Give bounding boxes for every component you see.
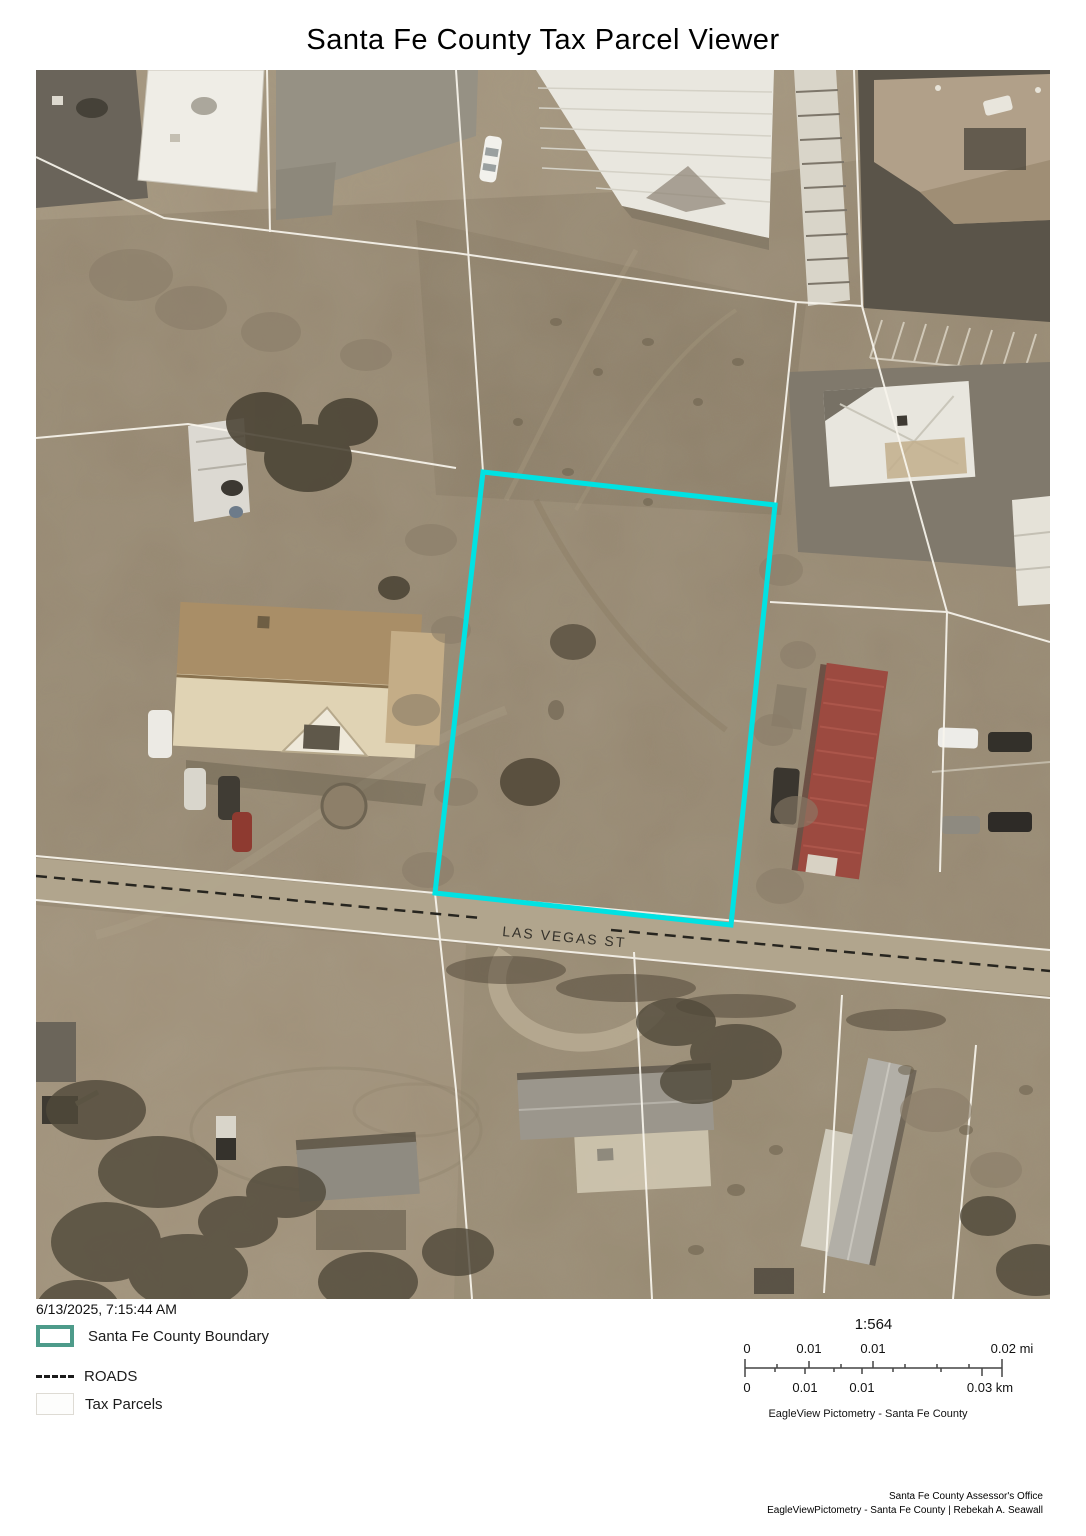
scale-mi-0: 0 bbox=[743, 1341, 750, 1356]
scale-mi-3: 0.02 mi bbox=[991, 1341, 1034, 1356]
scale-km-3: 0.03 km bbox=[967, 1380, 1013, 1395]
legend-item-tax-parcels: Tax Parcels bbox=[36, 1392, 163, 1416]
page-title: Santa Fe County Tax Parcel Viewer bbox=[0, 24, 1086, 57]
scale-bar: 0 0.01 0.01 0.02 mi 0 0.01 bbox=[735, 1340, 1035, 1403]
scale-ratio: 1:564 bbox=[745, 1316, 1002, 1333]
scale-km-0: 0 bbox=[743, 1380, 750, 1395]
white-house bbox=[823, 381, 975, 487]
legend-label: Santa Fe County Boundary bbox=[88, 1328, 269, 1345]
credits-block: Santa Fe County Assessor's Office EagleV… bbox=[767, 1490, 1043, 1518]
roads-dash-swatch bbox=[36, 1375, 74, 1378]
legend-item-roads: ROADS bbox=[36, 1364, 137, 1388]
credits-line-1: Santa Fe County Assessor's Office bbox=[767, 1490, 1043, 1504]
tan-house bbox=[173, 602, 446, 760]
aerial-photo: LAS VEGAS ST bbox=[36, 70, 1050, 1299]
legend-label: ROADS bbox=[84, 1368, 137, 1385]
map-canvas[interactable]: LAS VEGAS ST bbox=[36, 70, 1050, 1299]
scale-mi-1: 0.01 bbox=[796, 1341, 821, 1356]
credits-line-2: EagleViewPictometry - Santa Fe County | … bbox=[767, 1504, 1043, 1518]
scale-mi-2: 0.01 bbox=[860, 1341, 885, 1356]
county-boundary-swatch bbox=[36, 1325, 74, 1347]
tax-parcels-swatch bbox=[36, 1393, 74, 1415]
legend-label: Tax Parcels bbox=[85, 1396, 163, 1413]
scale-km-1: 0.01 bbox=[792, 1380, 817, 1395]
tax-parcel-viewer-page: Santa Fe County Tax Parcel Viewer bbox=[0, 0, 1086, 1536]
scale-km-2: 0.01 bbox=[849, 1380, 874, 1395]
imagery-source: EagleView Pictometry - Santa Fe County bbox=[735, 1408, 1001, 1420]
legend-item-county-boundary: Santa Fe County Boundary bbox=[36, 1324, 269, 1348]
map-timestamp: 6/13/2025, 7:15:44 AM bbox=[36, 1301, 177, 1317]
